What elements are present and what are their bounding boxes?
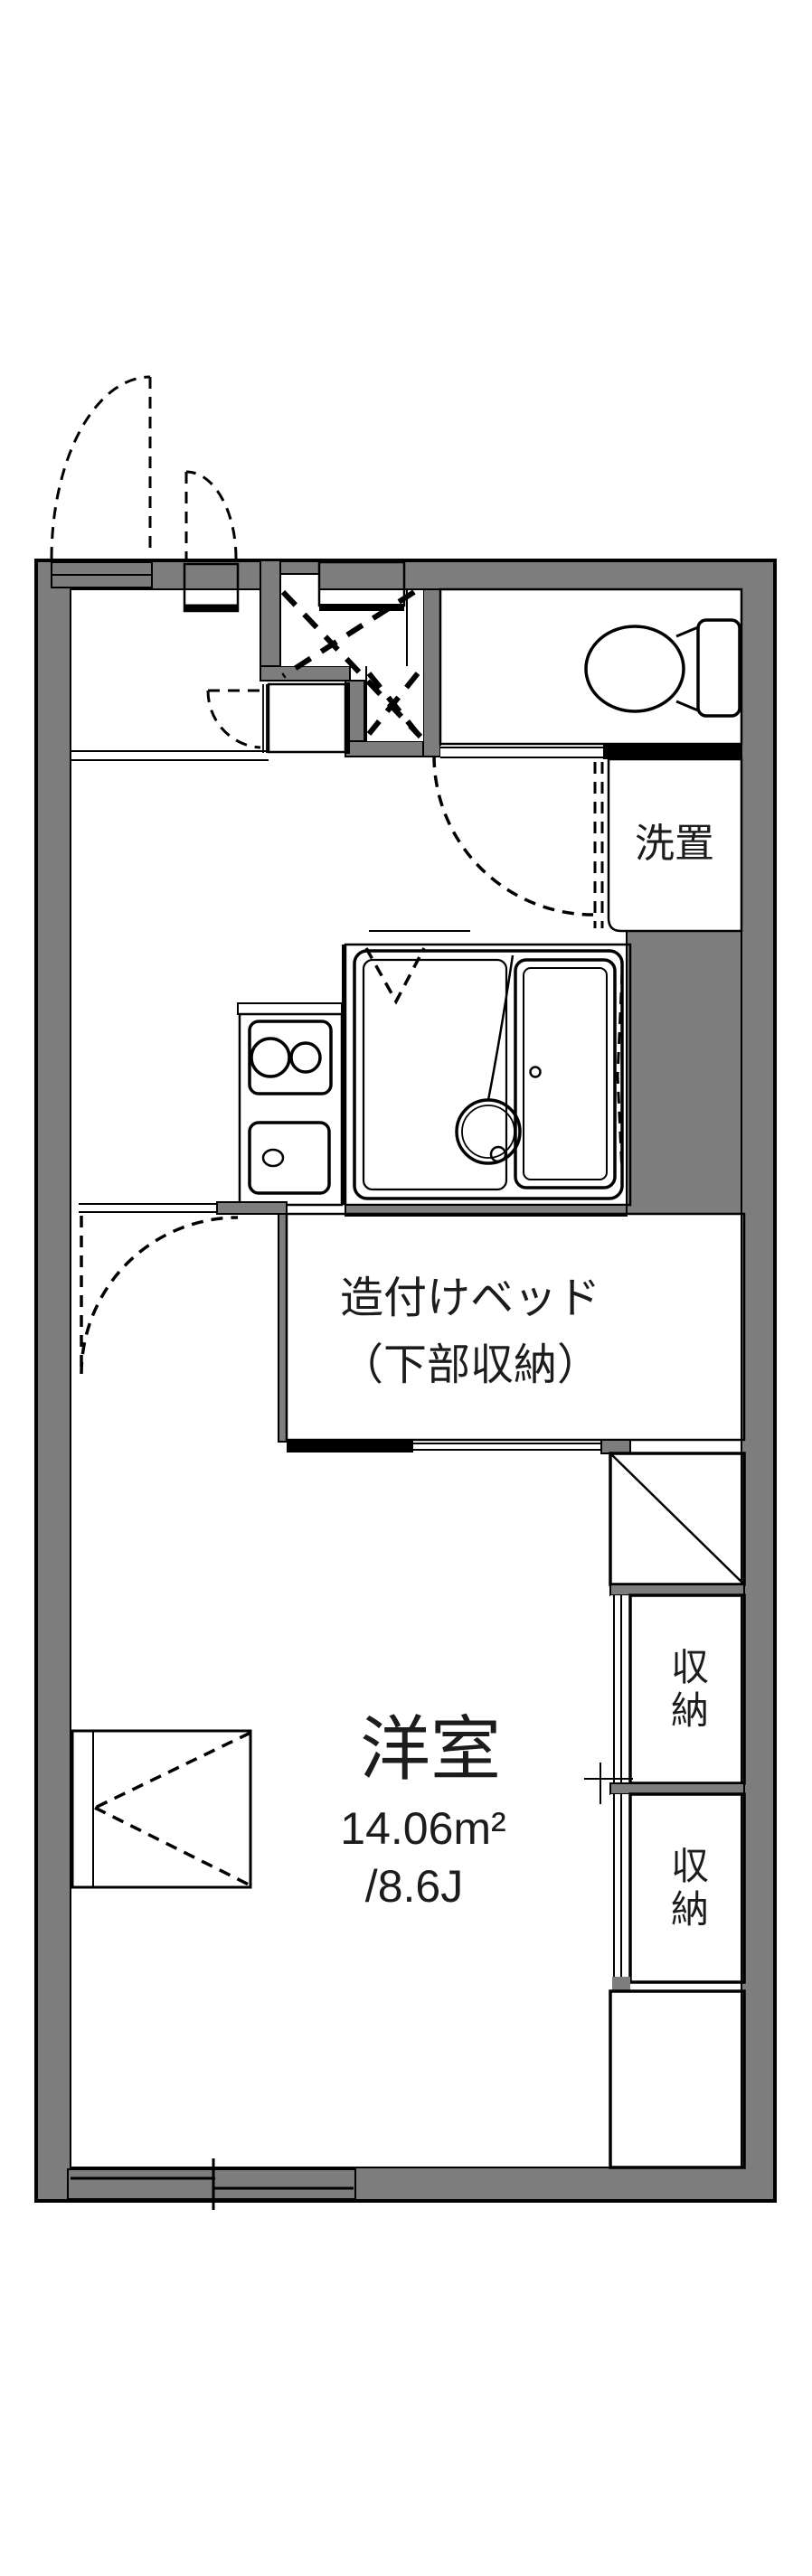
toilet-wall-left — [423, 589, 440, 757]
bed-wall-bottom — [287, 1440, 413, 1453]
entry-wall-mid — [260, 666, 350, 681]
storage-bottom-label-box: 収納 — [633, 1808, 741, 1970]
western-room-area-sqm: 14.06m² — [340, 1803, 505, 1854]
bed-wall-left — [279, 1214, 287, 1442]
western-room-label: 洋室 — [360, 1709, 501, 1789]
storage-top-label-box: 収納 — [633, 1609, 741, 1772]
divider-wall — [217, 1202, 287, 1214]
laundry-door-strip — [590, 759, 609, 931]
entry-wall-left — [260, 560, 280, 681]
storage-divider-bottom — [612, 1977, 630, 1991]
bed-label-line1: 造付けベッド — [340, 1274, 600, 1322]
storage-top-label: 収納 — [633, 1609, 741, 1772]
storage-divider-mid — [610, 1783, 744, 1794]
storage-bottom-label: 収納 — [633, 1808, 741, 1970]
wall-bottom — [36, 2167, 775, 2201]
toilet-wall-bottom — [603, 744, 741, 759]
bed-label-line2: （下部収納） — [340, 1341, 600, 1389]
laundry-room-label: 洗置 — [635, 822, 714, 866]
wall-right — [741, 560, 775, 2201]
storage-divider-top — [610, 1584, 744, 1595]
floorplan-page: 洗置 — [0, 0, 812, 2576]
wall-left — [36, 560, 71, 2201]
bed-wall-bottom-right — [601, 1440, 630, 1453]
western-room-area-tatami: /8.6J — [365, 1861, 463, 1912]
wall-mass-right-of-bath — [627, 931, 741, 1214]
doma-area-center — [319, 613, 404, 666]
floorplan-drawing: 洗置 — [0, 0, 812, 2576]
